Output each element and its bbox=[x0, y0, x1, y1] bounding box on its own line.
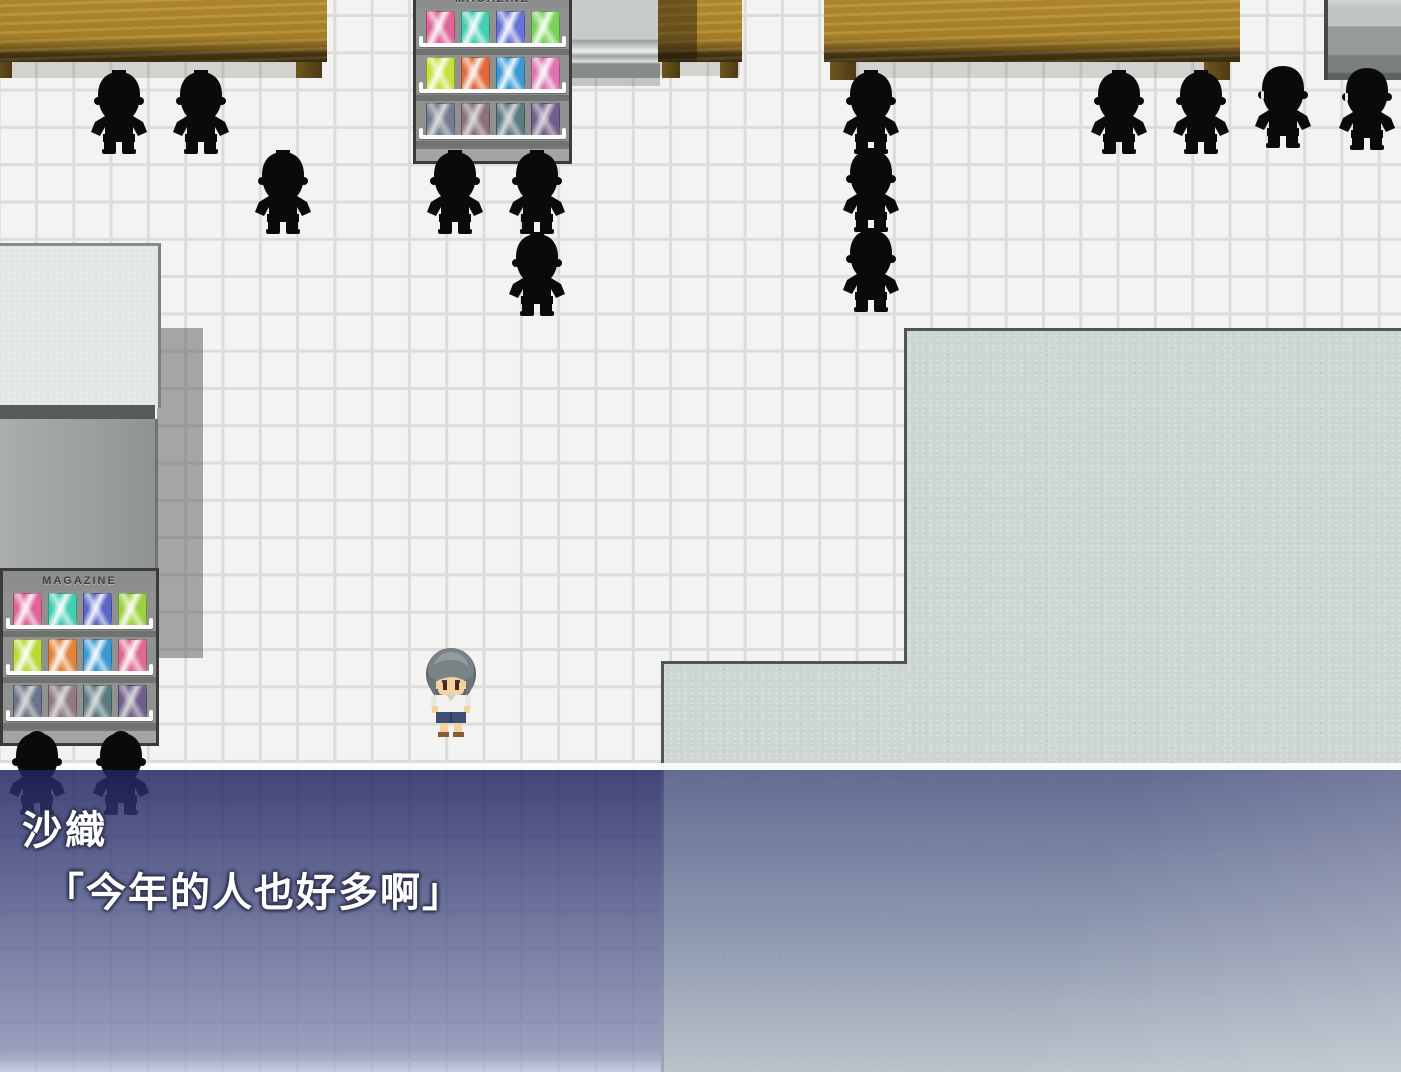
magazine bbox=[461, 103, 490, 136]
left-rack-shadow bbox=[157, 328, 203, 658]
magazine-rack: MAGAZINE bbox=[0, 568, 159, 746]
magazine bbox=[13, 685, 42, 718]
magazine bbox=[426, 103, 455, 136]
magazine bbox=[118, 593, 147, 626]
platform-edge-left bbox=[904, 328, 907, 664]
magazine bbox=[48, 593, 77, 626]
magazine bbox=[496, 57, 525, 90]
crowd-silhouette-front bbox=[252, 150, 314, 239]
magazine bbox=[531, 11, 560, 44]
shelf-wire-bar bbox=[6, 717, 153, 721]
crowd-silhouette-front bbox=[88, 70, 150, 159]
crowd-silhouette-front bbox=[170, 70, 232, 159]
magazine bbox=[48, 639, 77, 672]
game-screen[interactable]: MAGAZINEMAGAZINE 沙織 「今年的人也好多啊」 bbox=[0, 0, 1401, 1072]
platform-edge-top bbox=[906, 328, 1401, 331]
crowd-silhouette-front bbox=[1088, 70, 1150, 159]
shelf-wire-bar bbox=[6, 671, 153, 675]
crowd-silhouette-front bbox=[1170, 70, 1232, 159]
magazine bbox=[461, 11, 490, 44]
crowd-silhouette-front bbox=[506, 232, 568, 321]
crowd-silhouette-side bbox=[1252, 64, 1314, 153]
magazine-shelf bbox=[416, 9, 569, 55]
magazine bbox=[426, 57, 455, 90]
magazine-shelf bbox=[416, 101, 569, 147]
magazine-shelf bbox=[3, 637, 156, 683]
magazine bbox=[461, 57, 490, 90]
magazine bbox=[531, 103, 560, 136]
platform-step-edge-top bbox=[661, 661, 907, 664]
dialog-window[interactable]: 沙織 「今年的人也好多啊」 bbox=[0, 770, 1401, 1072]
crowd-silhouette-side bbox=[1336, 66, 1398, 155]
dialog-speaker-name: 沙織 bbox=[22, 798, 108, 856]
counter-left bbox=[0, 243, 161, 408]
magazine bbox=[13, 593, 42, 626]
magazine bbox=[531, 57, 560, 90]
crowd-silhouette-front bbox=[840, 228, 902, 317]
counter-gray-shadow bbox=[572, 78, 660, 86]
crowd-silhouette-front bbox=[840, 148, 902, 237]
magazine-rack: MAGAZINE bbox=[413, 0, 572, 164]
magazine-shelf bbox=[3, 591, 156, 637]
shelf-wire-bar bbox=[419, 89, 566, 93]
crowd-silhouette-front bbox=[424, 150, 486, 239]
magazine bbox=[83, 593, 112, 626]
magazine bbox=[13, 639, 42, 672]
magazine bbox=[496, 11, 525, 44]
magazine bbox=[426, 11, 455, 44]
dialog-text-line: 「今年的人也好多啊」 bbox=[44, 860, 464, 918]
shelf-wire-bar bbox=[419, 135, 566, 139]
counter-gray bbox=[572, 0, 660, 78]
crowd-silhouette-front bbox=[840, 70, 902, 159]
magazine bbox=[48, 685, 77, 718]
player-character bbox=[419, 646, 483, 740]
magazine bbox=[83, 685, 112, 718]
table-small bbox=[658, 0, 742, 62]
table-right bbox=[824, 0, 1240, 62]
shelf-wire-bar bbox=[6, 625, 153, 629]
table-left-floor-shadow bbox=[0, 62, 322, 78]
dialog-window-top-border bbox=[0, 763, 1401, 770]
magazine bbox=[496, 103, 525, 136]
magazine-shelf bbox=[3, 683, 156, 729]
magazine-rack-label: MAGAZINE bbox=[416, 0, 569, 9]
crowd-silhouette-front bbox=[506, 150, 568, 239]
magazine bbox=[118, 639, 147, 672]
magazine bbox=[118, 685, 147, 718]
vending-machine-left bbox=[0, 419, 158, 569]
magazine-rack-label: MAGAZINE bbox=[3, 571, 156, 591]
machine-top-strip bbox=[0, 405, 155, 419]
magazine bbox=[83, 639, 112, 672]
magazine-shelf bbox=[416, 55, 569, 101]
table-left bbox=[0, 0, 327, 62]
shelf-wire-bar bbox=[419, 43, 566, 47]
